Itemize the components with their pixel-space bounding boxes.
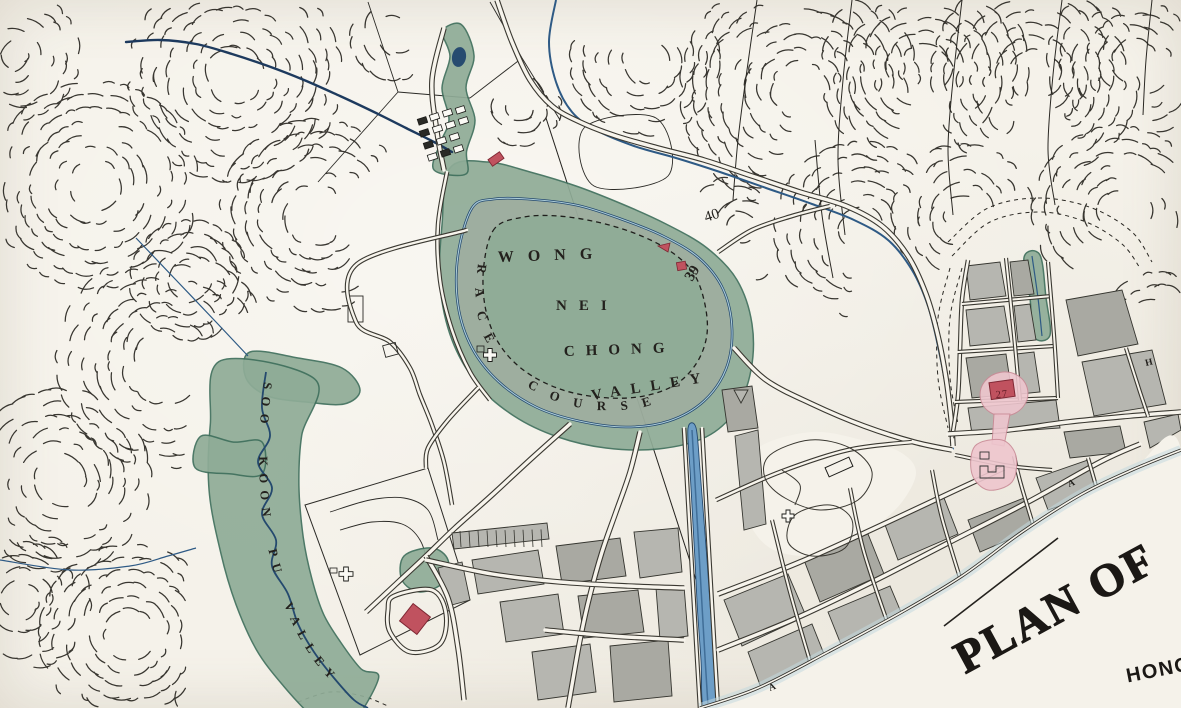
street-casing — [718, 206, 830, 252]
street — [734, 348, 952, 450]
city-block — [1066, 290, 1138, 356]
city-block — [556, 538, 626, 584]
label-lot-40: 40 — [702, 206, 721, 226]
lot-inner-path — [330, 497, 438, 540]
city-block — [966, 262, 1006, 300]
cross-building — [339, 567, 353, 581]
street — [718, 206, 830, 252]
lot-boundary-line — [470, 58, 522, 98]
village-house — [429, 113, 439, 121]
ridge-gully-line — [948, 0, 962, 215]
ridge-gully-line — [1143, 0, 1152, 115]
map-canvas: WONG NEI CHONG VALLEY RACE COURSE SOO KO… — [0, 0, 1181, 708]
village-house — [423, 141, 433, 149]
city-block — [634, 528, 682, 578]
city-block — [610, 640, 672, 702]
map-frame: WONG NEI CHONG VALLEY RACE COURSE SOO KO… — [0, 0, 1181, 708]
building-outline — [330, 568, 337, 573]
city-block — [966, 306, 1010, 346]
city-block — [532, 644, 596, 700]
red-building-diamond — [400, 604, 431, 635]
terrace-block — [452, 523, 549, 549]
valley-west-arm-green — [193, 435, 266, 476]
soo-koon-pu-valley-green — [208, 358, 379, 708]
label-lot-27: 27 — [995, 389, 1009, 401]
city-block — [500, 594, 564, 642]
street-casing — [734, 348, 952, 450]
village-house — [419, 129, 429, 137]
city-block — [656, 586, 688, 640]
city-block — [1082, 350, 1166, 416]
pink-lot — [971, 439, 1017, 490]
dashed-trail — [948, 198, 1152, 262]
label-nei: NEI — [556, 298, 619, 314]
village-house — [417, 117, 427, 125]
